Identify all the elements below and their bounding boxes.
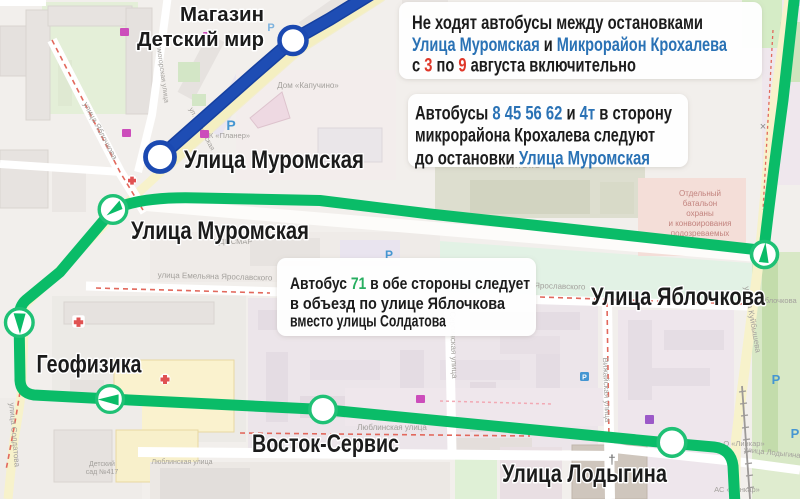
svg-text:Отдельный: Отдельный	[679, 189, 721, 198]
svg-text:Автобусы 8 45 56 62 и 4т в: Автобусы 8 45 56 62 и 4т в сторону	[415, 104, 672, 125]
svg-text:Люблинская улица: Люблинская улица	[152, 458, 213, 466]
svg-text:Детский: Детский	[89, 460, 115, 468]
svg-text:Детский мир: Детский мир	[137, 29, 264, 51]
svg-text:Улица Яблочкова: Улица Яблочкова	[591, 283, 766, 311]
svg-text:Не ходят автобусы между остано: Не ходят автобусы между остановками	[412, 13, 703, 34]
svg-text:P: P	[226, 117, 235, 133]
svg-text:Геофизика: Геофизика	[37, 351, 143, 379]
svg-text:Р: Р	[791, 426, 800, 441]
svg-text:Яблочкова: Яблочкова	[759, 296, 797, 305]
svg-text:в объезд по улице Яблочкова: в объезд по улице Яблочкова	[290, 295, 506, 313]
svg-text:Улица Муромская: Улица Муромская	[184, 146, 364, 174]
svg-text:Автобус 71 в обе стороны след: Автобус 71 в обе стороны следует	[290, 275, 530, 293]
svg-text:до остановки Улица Муромская: до остановки Улица Муромская	[415, 149, 650, 170]
svg-text:сад №417: сад №417	[86, 469, 119, 476]
svg-text:вместо улицы Солдатова: вместо улицы Солдатова	[290, 313, 447, 331]
svg-text:P: P	[582, 375, 587, 382]
svg-text:с 3 по 9 августа включительно: с 3 по 9 августа включительно	[412, 56, 636, 77]
svg-text:батальон: батальон	[683, 199, 717, 208]
svg-text:Магазин: Магазин	[180, 4, 264, 26]
svg-text:Р: Р	[772, 372, 781, 387]
svg-text:Улица Муромская и Микрорайон К: Улица Муромская и Микрорайон Крохалева	[412, 35, 727, 56]
svg-text:P: P	[267, 22, 274, 34]
svg-text:Восток-Сервис: Восток-Сервис	[252, 430, 399, 458]
svg-text:и конвоирования: и конвоирования	[669, 219, 732, 228]
svg-text:Дом «Капучино»: Дом «Капучино»	[277, 81, 339, 90]
svg-text:Улица Лодыгина: Улица Лодыгина	[502, 460, 668, 488]
svg-text:Улица Муромская: Улица Муромская	[131, 217, 309, 245]
svg-text:охраны: охраны	[686, 209, 714, 218]
svg-text:×: ×	[760, 121, 766, 133]
svg-text:О «Линкар»: О «Линкар»	[723, 439, 764, 448]
svg-text:микрорайона Крохалева следуют: микрорайона Крохалева следуют	[415, 126, 655, 147]
